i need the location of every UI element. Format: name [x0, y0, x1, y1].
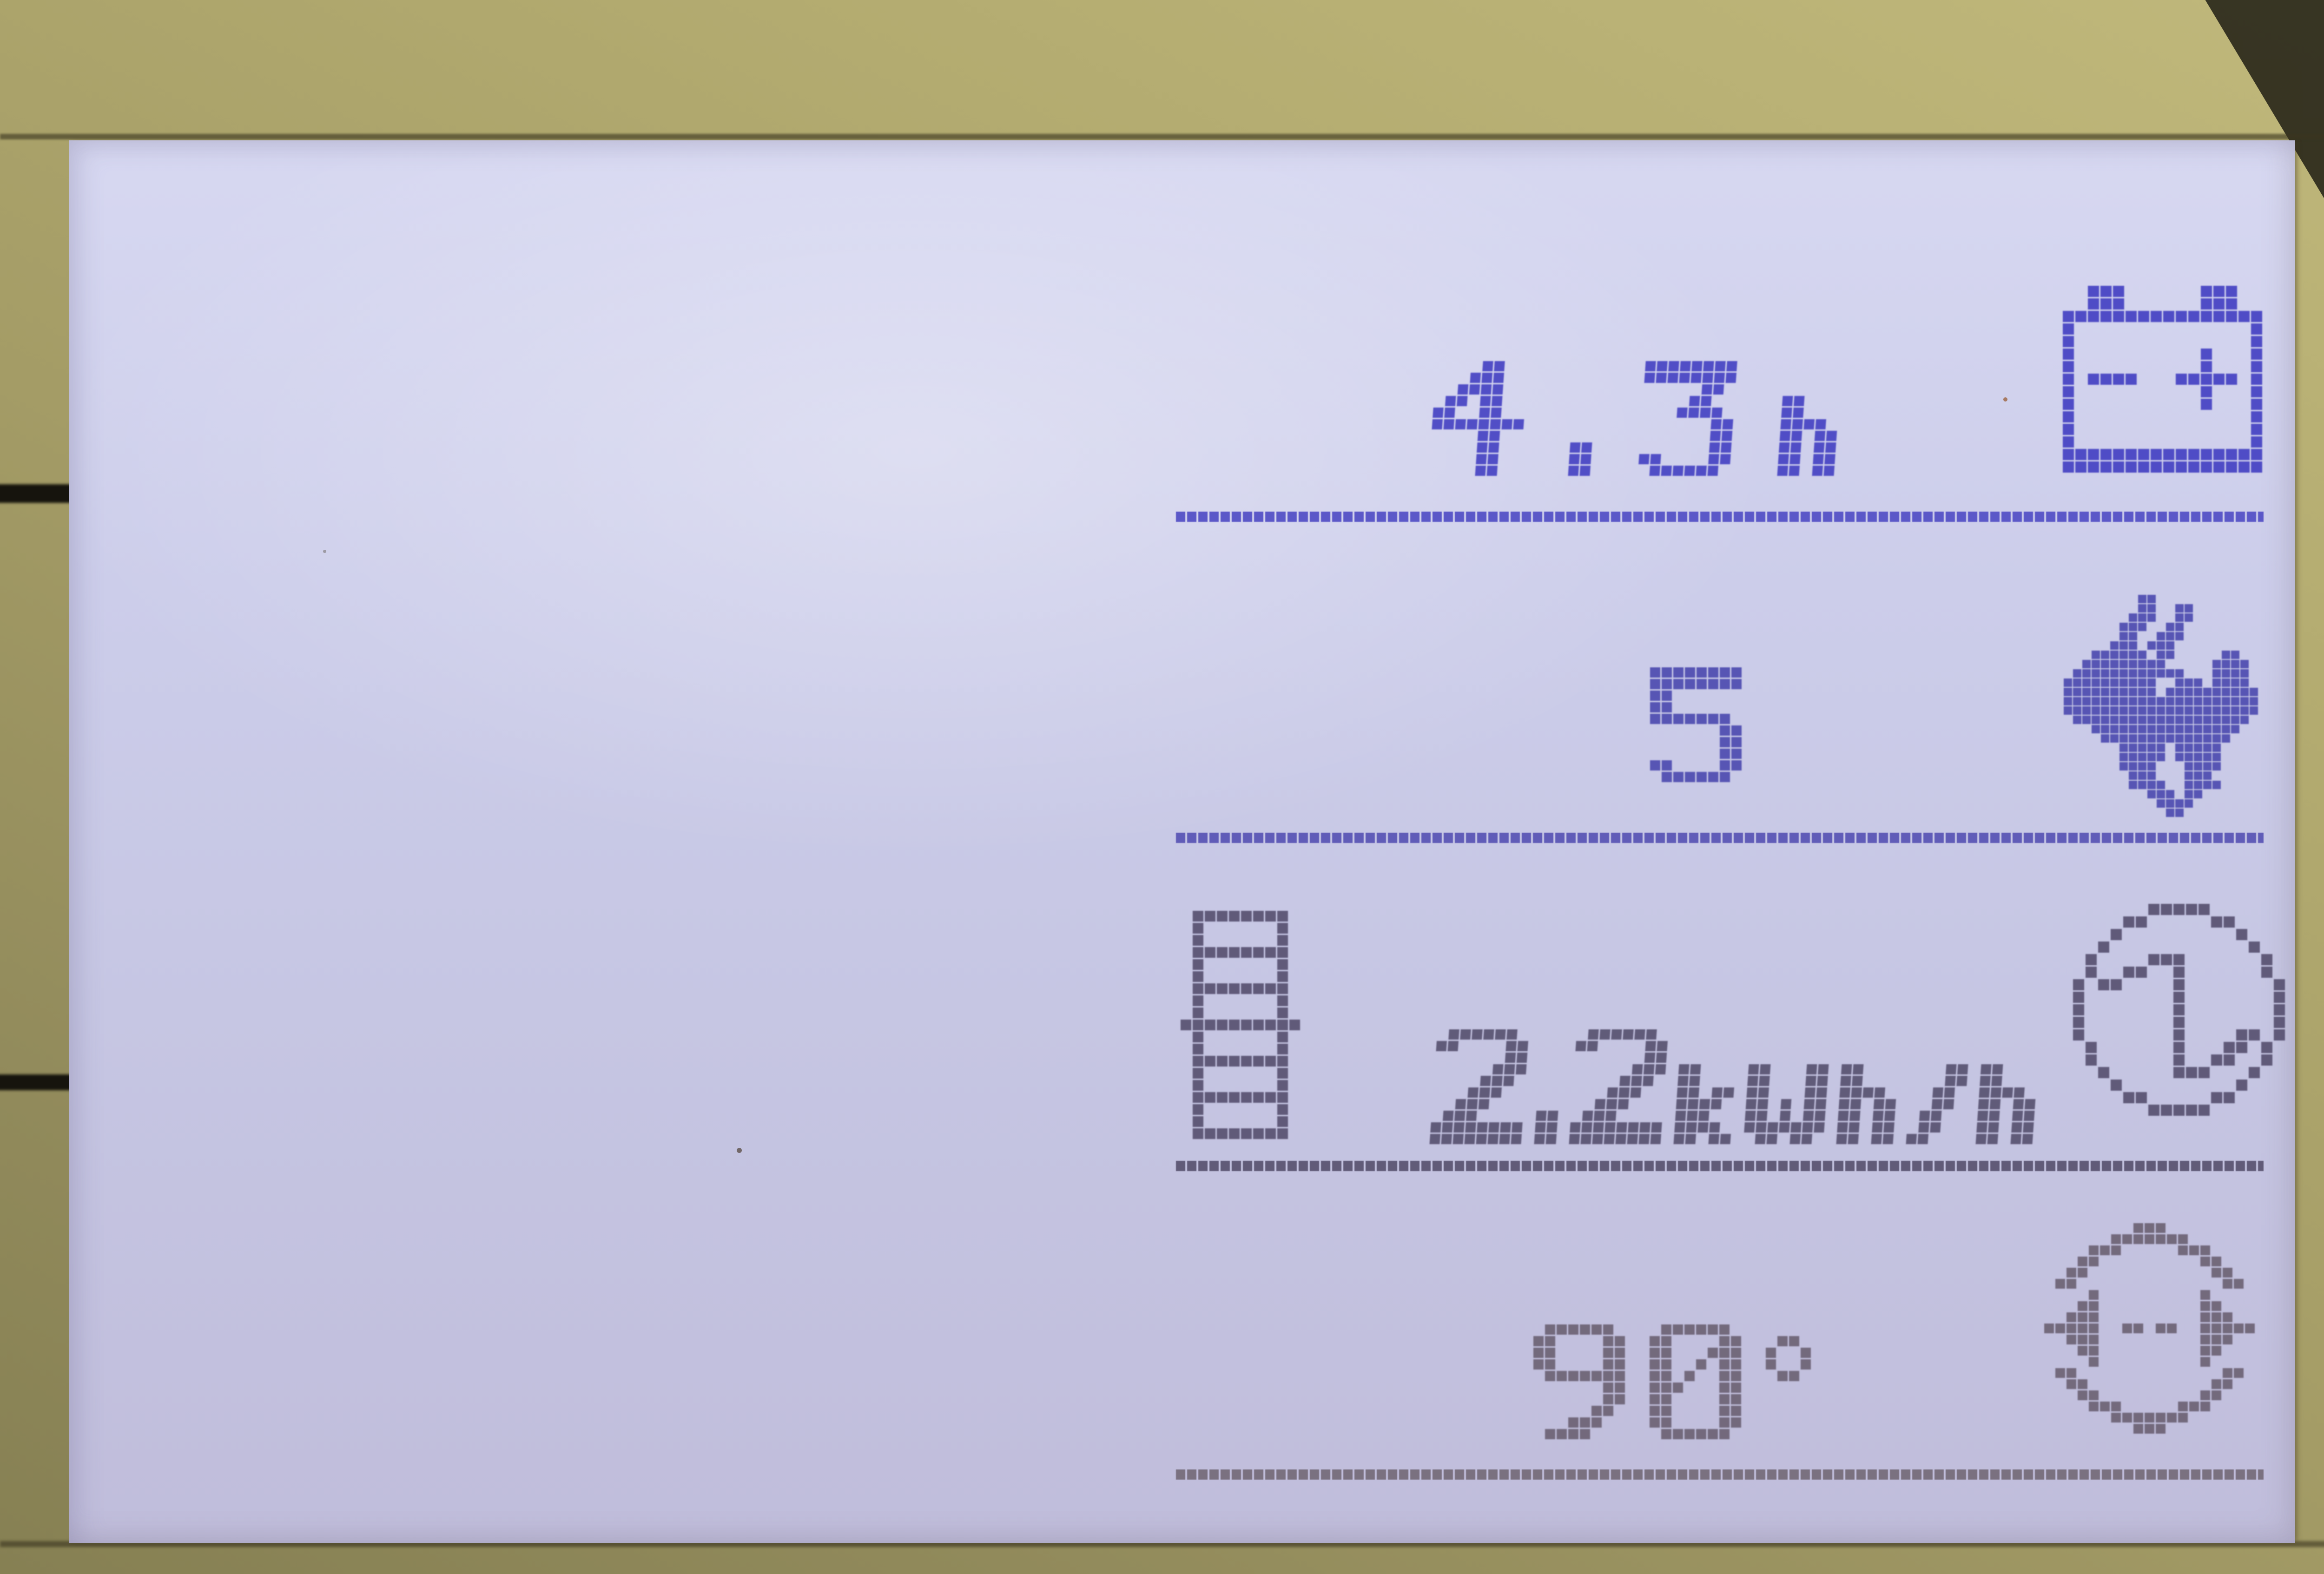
- housing-seam-left-lower: [0, 1074, 80, 1090]
- dust-speck: [2003, 397, 2007, 402]
- speed-level-text: 5: [69, 140, 69, 141]
- dust-speck: [323, 550, 326, 553]
- row-underline: [1176, 512, 2264, 522]
- spread-angle-text: 90°: [69, 140, 69, 141]
- speed-level-value: [1650, 667, 1743, 784]
- energy-rate-value: [1429, 1029, 2041, 1146]
- row-underline: [1176, 1161, 2264, 1171]
- lcd-screen: 4.3h 5 2.2kWh/h 90°: [69, 140, 2295, 1543]
- energy-meter-icon: [2073, 904, 2286, 1117]
- spread-width-icon: [2044, 1223, 2256, 1435]
- row-underline: [1176, 1469, 2264, 1480]
- level-gauge-icon: [1181, 911, 1301, 1140]
- control-panel-photo: 4.3h 5 2.2kWh/h 90°: [0, 0, 2324, 1574]
- battery-icon: [2063, 286, 2264, 474]
- dust-speck: [737, 1148, 742, 1153]
- bezel-seam-top: [0, 134, 2324, 139]
- battery-runtime-text: 4.3h: [69, 140, 69, 141]
- rabbit-speed-icon: [2064, 595, 2259, 818]
- row-underline: [1176, 833, 2264, 843]
- energy-rate-text: 2.2kWh/h: [69, 140, 69, 141]
- housing-seam-left-upper: [0, 484, 76, 503]
- spread-angle-value: [1533, 1324, 1812, 1441]
- battery-runtime-value: [1428, 361, 1843, 477]
